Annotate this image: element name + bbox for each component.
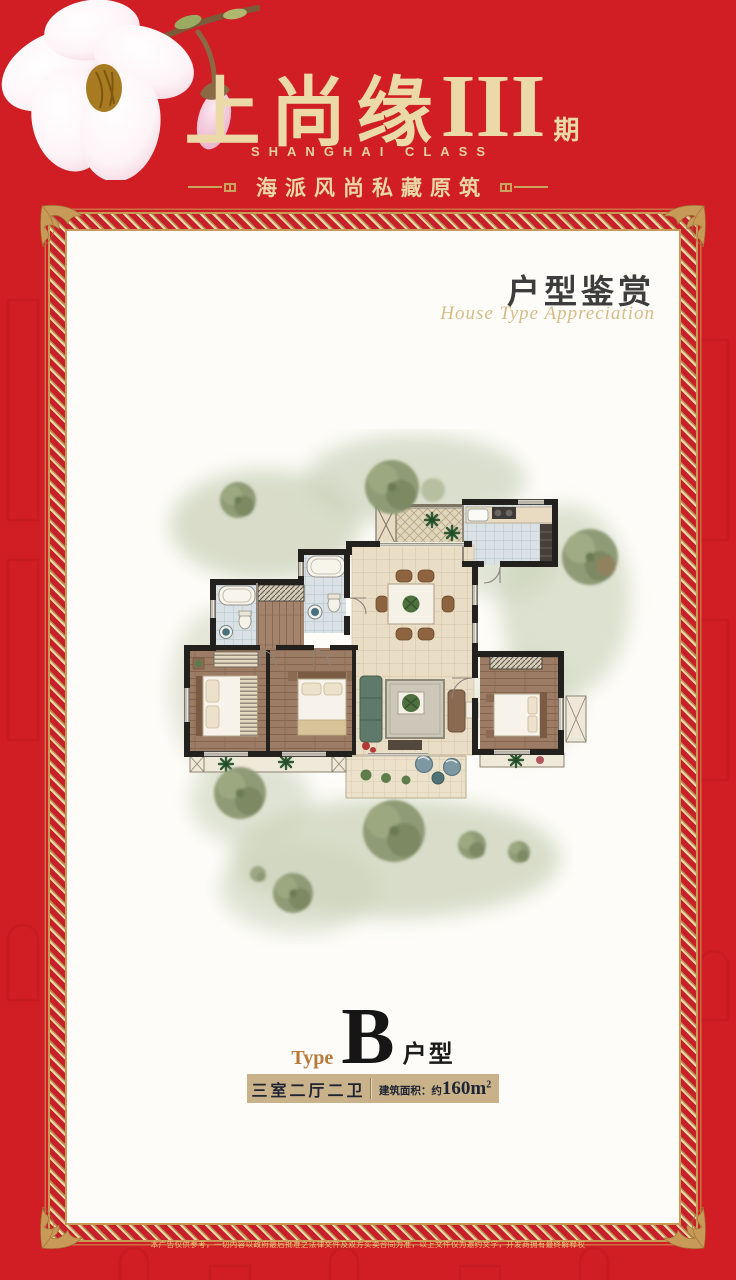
patio: [346, 756, 466, 799]
disclaimer-text: 本广告仅供参考，一切内容以政府最后批准之法律文件及双方买卖合同为准，以上文件仅为…: [0, 1239, 736, 1250]
spec-area-value: 160m: [442, 1078, 486, 1099]
type-block: Type B 户型: [65, 1001, 681, 1073]
spec-area: 建筑面积：约160m2: [371, 1078, 499, 1100]
tree-icon: [250, 866, 266, 882]
spec-area-sup: 2: [486, 1079, 491, 1090]
tree-icon: [421, 478, 445, 502]
bathroom-master: [216, 583, 258, 645]
kitchen: [464, 505, 556, 565]
tagline-row: 海派风尚私藏原筑: [0, 172, 736, 202]
spec-area-label: 建筑面积：约: [379, 1086, 442, 1097]
spec-bar: 三室二厅二卫 建筑面积：约160m2: [247, 1074, 499, 1103]
corner-flourish-icon: [661, 1205, 707, 1251]
tree-icon: [363, 800, 425, 862]
tree-icon: [365, 460, 419, 514]
type-letter: B: [341, 1001, 394, 1073]
dressing-corridor: [258, 585, 304, 651]
tree-icon: [458, 831, 486, 859]
brand-title-numeral: III: [440, 62, 545, 152]
bedroom-right: [480, 653, 564, 751]
card-body: 户型鉴赏 House Type Appreciation: [65, 229, 681, 1225]
tagline-ornament-right-icon: [500, 183, 548, 192]
corner-flourish-icon: [39, 1205, 85, 1251]
tree-icon: [508, 841, 530, 863]
type-suffix: 户型: [403, 1045, 455, 1067]
tree-icon: [220, 482, 256, 518]
tree-icon: [562, 529, 618, 585]
tagline-ornament-left-icon: [188, 183, 236, 192]
floor-plan: [95, 429, 651, 949]
brand-title: 上尚缘III期: [14, 62, 736, 152]
tagline-text: 海派风尚私藏原筑: [248, 172, 488, 202]
spec-rooms: 三室二厅二卫: [247, 1077, 370, 1101]
brand-title-cn: 上尚缘: [184, 76, 442, 152]
type-label: Type: [291, 1049, 333, 1067]
corner-flourish-icon: [661, 203, 707, 249]
content-card: 户型鉴赏 House Type Appreciation: [50, 214, 696, 1240]
tree-icon: [214, 767, 266, 819]
brand-title-suffix: 期: [554, 118, 580, 144]
section-subtitle: House Type Appreciation: [440, 303, 655, 325]
tree-icon: [273, 873, 313, 913]
poster-page: { "header": { "title_cn": "上尚缘", "title_…: [0, 0, 736, 1280]
bedroom-second: [270, 648, 356, 753]
corner-flourish-icon: [39, 203, 85, 249]
bedroom-master: [190, 648, 270, 753]
bathroom-second: [304, 553, 346, 633]
brand-subtitle: SHANGHAI CLASS: [0, 144, 736, 159]
